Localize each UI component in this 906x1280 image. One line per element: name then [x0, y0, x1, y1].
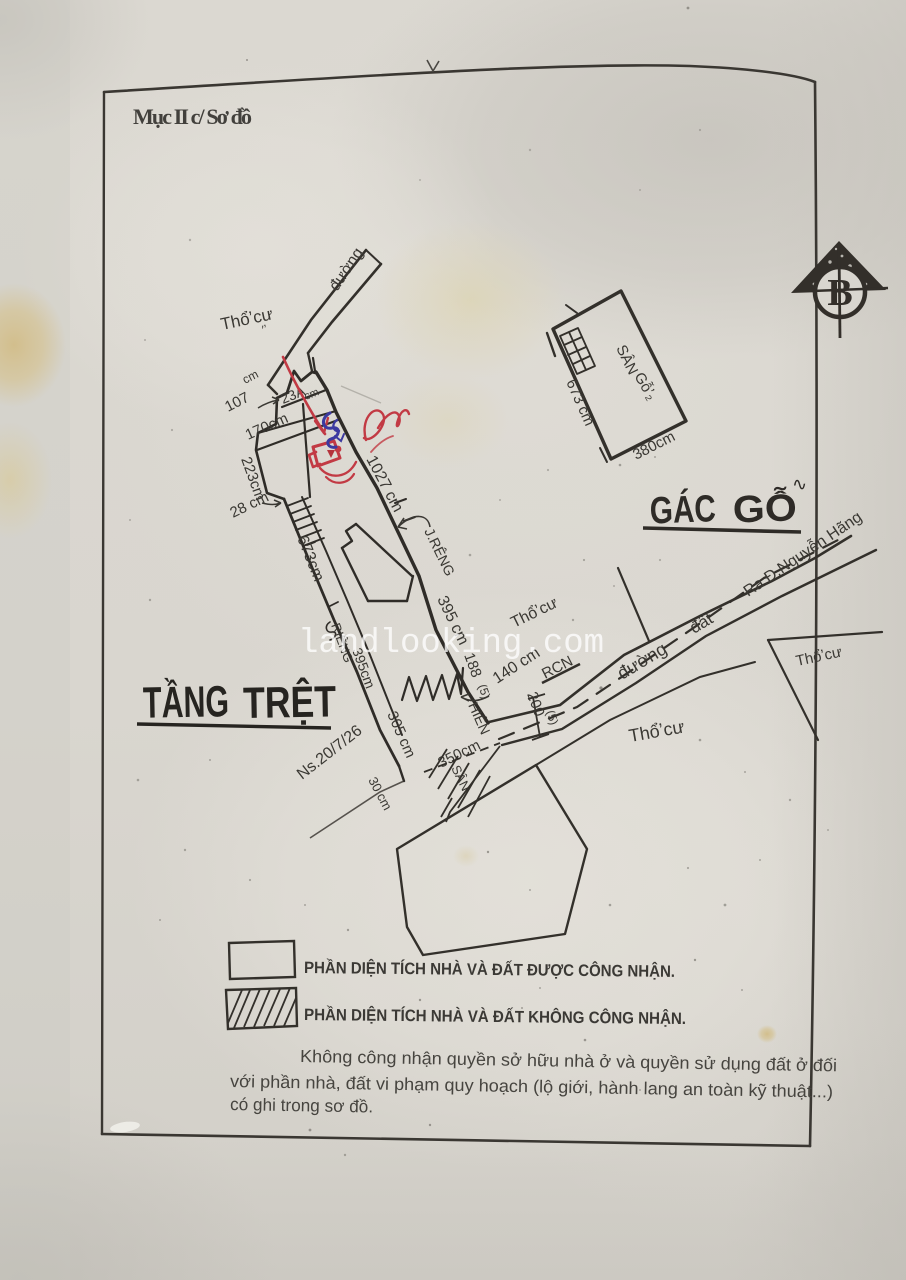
svg-text:PHẦN DIỆN TÍCH NHÀ VÀ ĐẤT KHÔN: PHẦN DIỆN TÍCH NHÀ VÀ ĐẤT KHÔNG CÔNG NHẬ… [304, 1005, 686, 1028]
svg-text:GÁC: GÁC [649, 486, 716, 532]
svg-text:GỖ: GỖ [732, 484, 798, 531]
svg-text:landlooking.com: landlooking.com [298, 625, 604, 663]
svg-text:PHẦN DIỆN TÍCH NHÀ VÀ ĐẤT ĐƯỢC: PHẦN DIỆN TÍCH NHÀ VÀ ĐẤT ĐƯỢC CÔNG NHẬN… [304, 958, 675, 981]
svg-text:TRỆT: TRỆT [243, 676, 337, 728]
svg-text:Mục II c/ Sơ đồ: Mục II c/ Sơ đồ [133, 104, 252, 129]
svg-text:TẦNG: TẦNG [143, 676, 230, 727]
svg-text:có ghi trong sơ đồ.: có ghi trong sơ đồ. [230, 1094, 373, 1116]
svg-text:∿: ∿ [792, 474, 808, 495]
